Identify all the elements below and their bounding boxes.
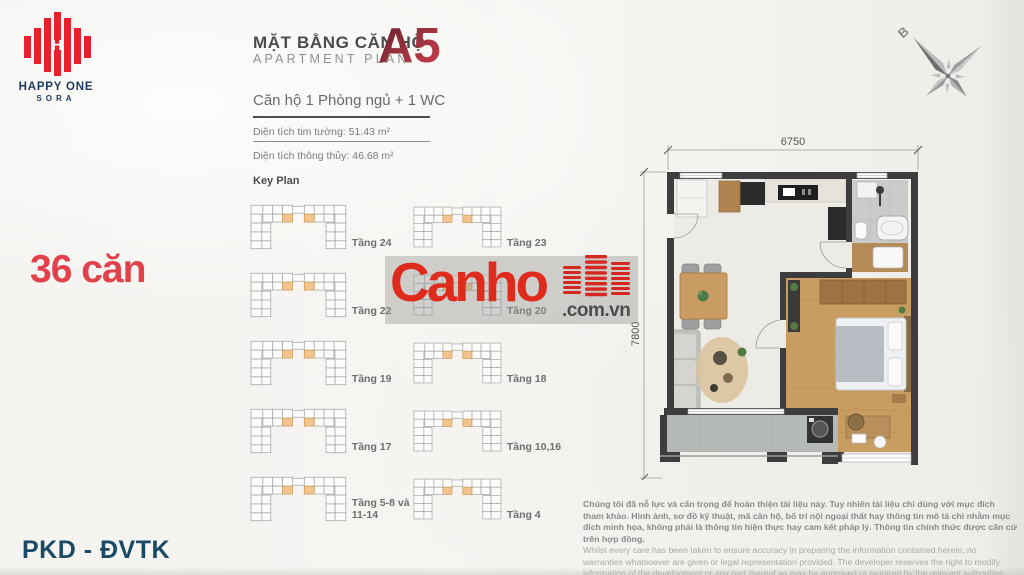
tall-cabinet	[828, 207, 846, 240]
pillow	[888, 358, 902, 386]
keyplan-item: Tầng 5-8 và 11-14	[250, 475, 413, 522]
watermark-domain: .com.vn	[562, 300, 630, 322]
keyplan-floor-label: Tầng 24	[352, 237, 413, 250]
stool	[874, 436, 886, 448]
watermark: Canho .com.vn	[385, 256, 638, 324]
keyplan-item: Tầng 23	[413, 203, 563, 250]
keyplan-title: Key Plan	[253, 175, 299, 187]
fridge	[740, 182, 765, 205]
plant	[738, 348, 747, 357]
compass-north-label: B	[895, 24, 912, 41]
watermark-brand: Canho	[390, 250, 546, 314]
keyplan-item: Tầng 18	[413, 339, 563, 386]
keyplan-floor-label: Tầng 19	[352, 373, 413, 386]
blanket	[836, 326, 884, 382]
coffee-table	[713, 351, 727, 365]
area-net: Diện tích thông thủy: 46.68 m²	[253, 150, 394, 162]
keyplan-mini-floorplan	[250, 408, 347, 454]
shower-tray	[857, 182, 877, 198]
logo-title: HAPPY ONE	[10, 81, 102, 93]
disclaimer: Chúng tôi đã nỗ lực và cẩn trọng để hoàn…	[583, 499, 1017, 575]
keyplan-item: Tầng 24	[250, 203, 413, 250]
entry-closet	[677, 180, 707, 217]
keyplan-mini-floorplan	[250, 476, 347, 522]
keyplan-mini-floorplan	[250, 204, 347, 250]
keyplan-mini-floorplan	[413, 476, 502, 522]
dim-height-label: 7800	[630, 322, 642, 346]
dining-set	[680, 264, 727, 329]
pillow	[888, 322, 902, 350]
desk-chair	[848, 414, 864, 430]
keyplan-floor-label: Tầng 18	[507, 373, 563, 386]
logo-subtitle: SORA	[10, 94, 102, 103]
keyplan-floor-label: Tầng 10,16	[507, 441, 563, 454]
dim-width-label: 6750	[781, 136, 805, 148]
sink	[873, 247, 903, 268]
toilet	[855, 222, 867, 239]
watermark-building-icon	[562, 254, 632, 304]
keyplan-floor-label: Tầng 4	[507, 509, 563, 522]
disclaimer-vi: Chúng tôi đã nỗ lực và cẩn trọng để hoàn…	[583, 499, 1017, 545]
keyplan-mini-floorplan	[250, 272, 347, 318]
keyplan-item: Tầng 17	[250, 407, 413, 454]
unit-code: A5	[378, 22, 441, 71]
sofa	[670, 330, 700, 414]
wardrobe	[820, 280, 906, 304]
area-wall-to-wall: Diện tích tim tường: 51.43 m²	[253, 126, 390, 138]
unit-type: Căn hộ 1 Phòng ngủ + 1 WC	[253, 92, 445, 109]
divider	[253, 141, 430, 142]
footer-department-label: PKD - ĐVTK	[22, 536, 170, 565]
happy-one-logo-icon: H	[16, 10, 96, 78]
keyplan-floor-label: Tầng 23	[507, 237, 563, 250]
divider	[253, 116, 430, 118]
rug	[696, 337, 748, 403]
shower-head	[876, 186, 884, 194]
keyplan-mini-floorplan	[413, 204, 502, 250]
keyplan-floor-label: Tầng 5-8 và 11-14	[352, 497, 413, 522]
entry-cabinet	[719, 181, 740, 212]
disclaimer-en: Whilst every care has been taken to ensu…	[583, 545, 1017, 575]
keyplan-floor-label: Tầng 17	[352, 441, 413, 454]
bedside-table	[892, 394, 906, 403]
keyplan-mini-floorplan	[250, 340, 347, 386]
svg-text:H: H	[52, 37, 63, 54]
keyplan-item: Tầng 10,16	[413, 407, 563, 454]
units-count: 36 căn	[30, 248, 190, 292]
keyplan-item: Tầng 19	[250, 339, 413, 386]
keyplan-mini-floorplan	[413, 408, 502, 454]
compass-icon: B	[888, 6, 1003, 131]
keyplan-mini-floorplan	[413, 340, 502, 386]
keyplan-item: Tầng 4	[413, 475, 563, 522]
logo: H HAPPY ONE SORA	[10, 10, 102, 103]
brochure-page: H HAPPY ONE SORA 36 căn PKD - ĐVTK MẶT B…	[0, 0, 1024, 575]
laptop	[852, 434, 866, 443]
apartment-floorplan: 6750 7800	[630, 130, 930, 480]
